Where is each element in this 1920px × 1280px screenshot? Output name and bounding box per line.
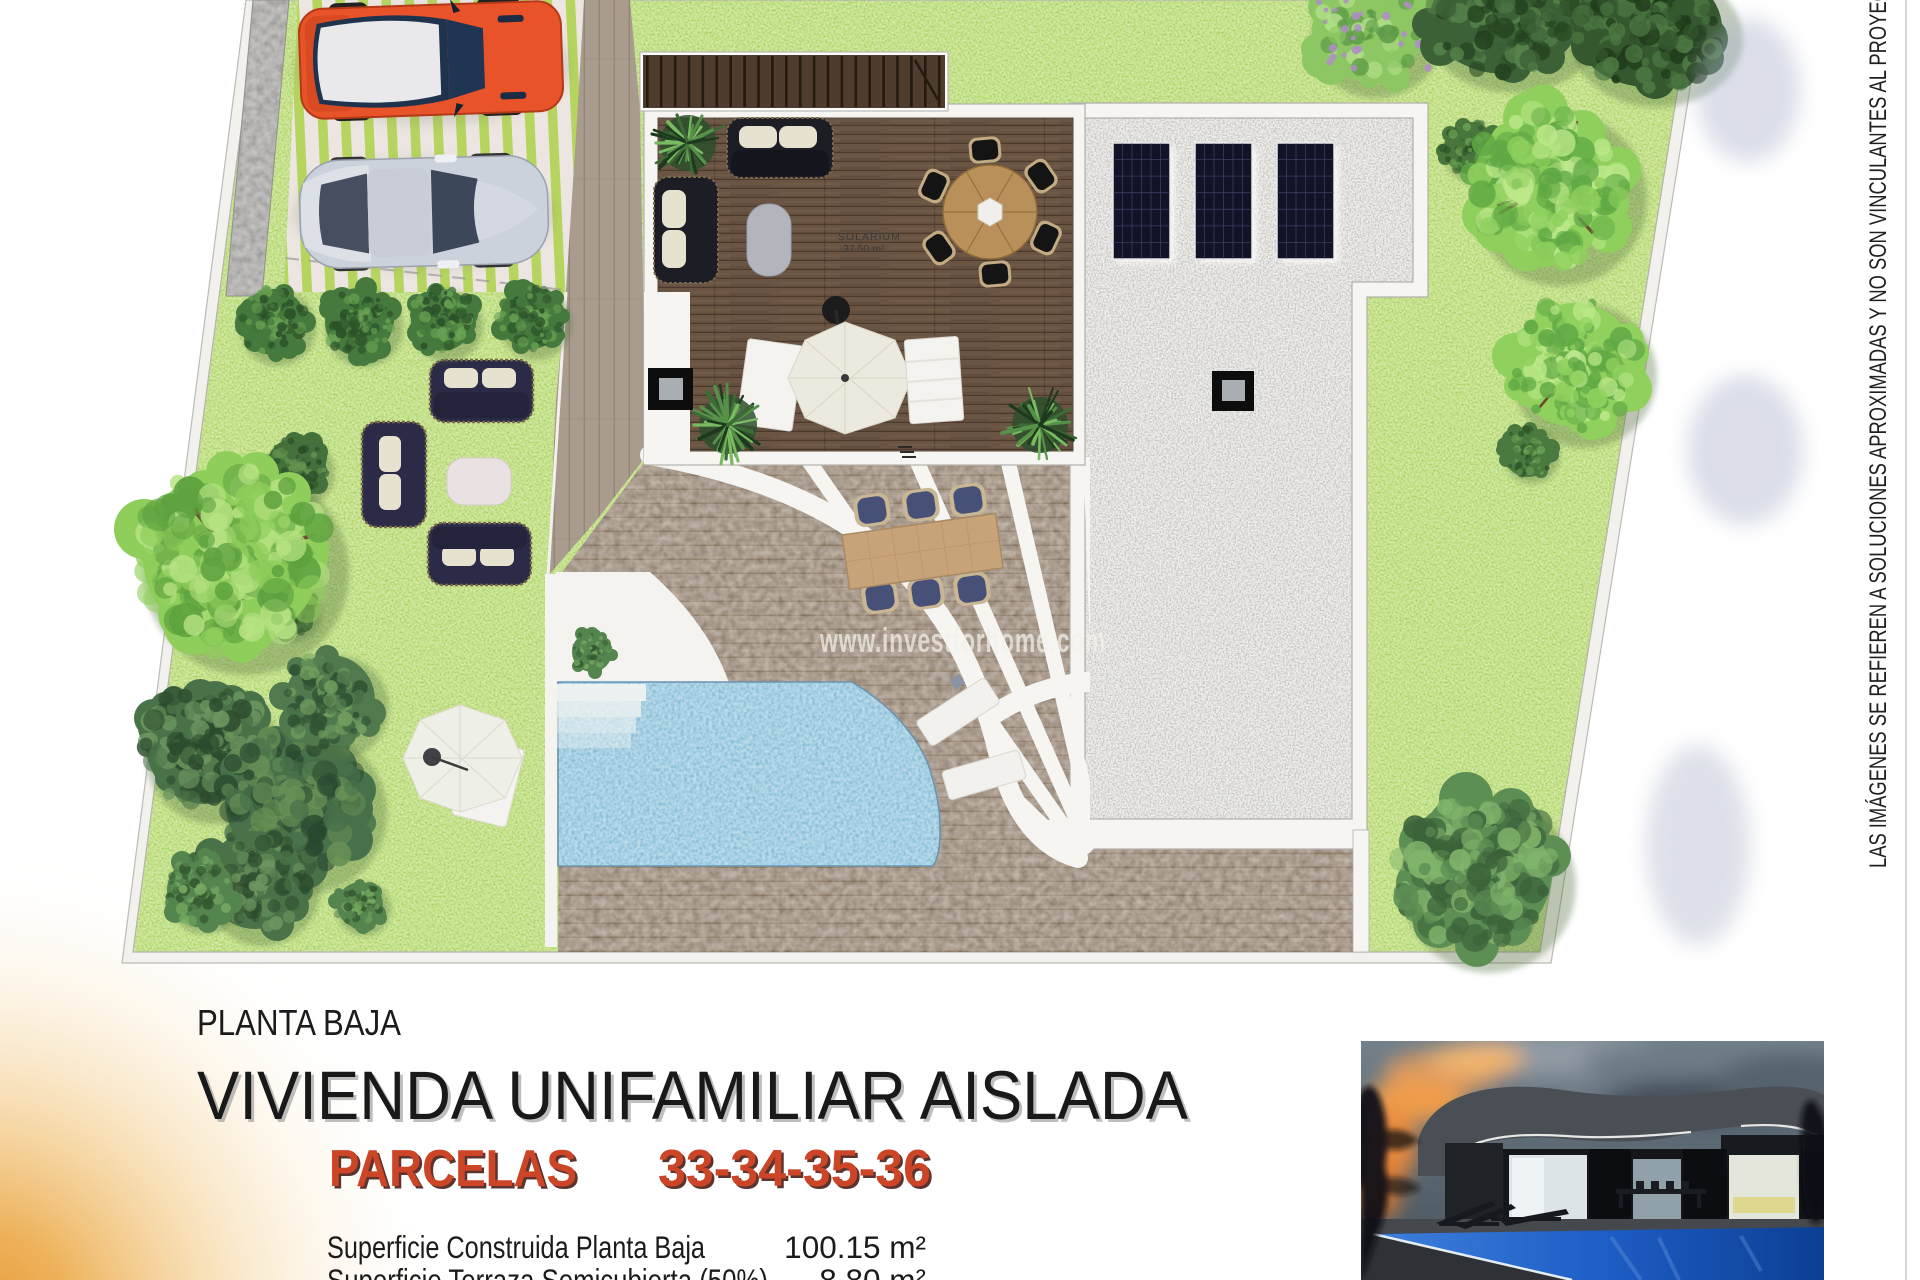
- svg-text:SOLARIUM: SOLARIUM: [838, 231, 901, 243]
- svg-text:PARCELAS: PARCELAS: [329, 1140, 577, 1198]
- svg-text:100.15 m²: 100.15 m²: [784, 1229, 926, 1265]
- svg-text:Superficie Construida Planta B: Superficie Construida Planta Baja: [327, 1229, 705, 1265]
- svg-text:www.investforhome.com: www.investforhome.com: [819, 622, 1106, 660]
- svg-text:37.50 m²: 37.50 m²: [843, 243, 885, 255]
- svg-text:PLANTA BAJA: PLANTA BAJA: [197, 1002, 401, 1043]
- svg-text:VIVIENDA UNIFAMILIAR AISLADA: VIVIENDA UNIFAMILIAR AISLADA: [197, 1057, 1188, 1134]
- svg-text:33-34-35-36: 33-34-35-36: [658, 1140, 931, 1198]
- svg-text:8.80 m²: 8.80 m²: [819, 1262, 926, 1280]
- svg-text:Superficie Terraza Semicubiert: Superficie Terraza Semicubierta (50%): [327, 1262, 768, 1280]
- svg-text:LAS IMÁGENES SE REFIEREN A SOL: LAS IMÁGENES SE REFIEREN A SOLUCIONES AP…: [1865, 0, 1892, 868]
